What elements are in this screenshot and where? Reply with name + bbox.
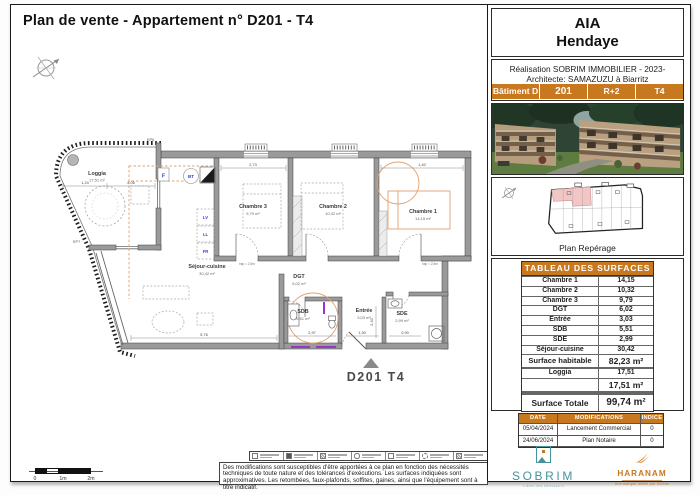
svg-text:EP7: EP7: [73, 240, 80, 244]
svg-text:1,30: 1,30: [358, 331, 365, 335]
project-city: Hendaye: [492, 33, 683, 51]
svg-text:0,90: 0,90: [401, 331, 408, 335]
lv-label: LV: [203, 215, 208, 220]
reperage-label: Plan Repérage: [492, 243, 683, 253]
unit-number: 201: [540, 84, 588, 99]
surface-row: Séjour-cuisine30,42: [522, 345, 653, 355]
room-label-dgt: DGT: [293, 274, 305, 280]
svg-text:2,73: 2,73: [249, 163, 256, 167]
sobrim-tagline: L'âme des bâtisseurs: [506, 484, 581, 488]
sobrim-house-icon: [536, 446, 551, 463]
svg-text:5,76: 5,76: [200, 333, 207, 337]
surface-row: DGT6,02: [522, 305, 653, 315]
title-block-panel: AIA Hendaye Réalisation SOBRIM IMMOBILIE…: [487, 5, 690, 481]
room-label-sejour: Séjour-cuisine: [188, 264, 225, 270]
svg-text:hsp = 2,5m: hsp = 2,5m: [239, 262, 255, 266]
reperage-compass-icon: [500, 184, 518, 202]
credit-line-2: Architecte: SAMAZUZU à Biarritz: [492, 74, 683, 84]
room-label-chambre1: Chambre 1: [409, 209, 437, 215]
room-label-sdb: SDB: [297, 309, 308, 315]
legend-cell: [352, 452, 386, 460]
legend-cell: [318, 452, 352, 460]
svg-text:14,15 m²: 14,15 m²: [415, 216, 431, 221]
shaft-symbol: [200, 167, 215, 183]
room-label-sde: SDE: [396, 311, 407, 317]
room-label-loggia: Loggia: [88, 171, 107, 177]
scale-1m: 1m: [59, 476, 66, 482]
svg-text:6,02 m²: 6,02 m²: [292, 281, 306, 286]
unit-type: T4: [636, 84, 683, 99]
disclaimer-text: Des modifications sont susceptibles d'êt…: [219, 462, 488, 485]
symbol-legend: [249, 451, 488, 461]
unit-floor: R+2: [588, 84, 636, 99]
room-label-chambre3: Chambre 3: [239, 204, 267, 210]
loggia-column: [68, 155, 79, 166]
svg-text:EP6: EP6: [147, 138, 154, 142]
compass-icon: [29, 51, 63, 85]
surfaces-table-header: TABLEAU DES SURFACES: [522, 262, 653, 276]
hsp-labels: hsp = 2,5m hsp = 2,5m: [239, 262, 438, 266]
sobrim-wordmark: SOBRIM: [506, 469, 581, 483]
scale-solid: [63, 468, 91, 474]
plan-sheet: Plan de vente - Appartement n° D201 - T4: [10, 4, 691, 482]
svg-text:hsp = 2,5m: hsp = 2,5m: [422, 262, 438, 266]
svg-text:10,32 m²: 10,32 m²: [325, 211, 341, 216]
unit-building: Bâtiment D: [492, 84, 540, 99]
surface-row: Entrée3,03: [522, 315, 653, 325]
legend-cell: [386, 452, 420, 460]
svg-text:3,03 m²: 3,03 m²: [357, 315, 371, 320]
svg-text:1,24: 1,24: [81, 181, 88, 185]
svg-text:2,06: 2,06: [127, 181, 134, 185]
doors: [236, 234, 421, 349]
fr-label: FR: [203, 249, 209, 254]
svg-text:17,51 m²: 17,51 m²: [89, 178, 105, 183]
credit-line-1: Réalisation SOBRIM IMMOBILIER - 2023-: [492, 64, 683, 74]
haranam-rule: [622, 480, 662, 481]
unit-label: D201 T4: [341, 370, 411, 384]
legend-cell: [250, 452, 284, 460]
svg-text:1,40: 1,40: [418, 163, 425, 167]
walls: [89, 143, 471, 349]
ll-label: LL: [203, 232, 209, 237]
credits-box: Réalisation SOBRIM IMMOBILIER - 2023- Ar…: [491, 59, 684, 101]
scale-bar: 0 1m 2m: [29, 463, 119, 483]
floor-plan: F BT LV LL FR 1,24 2,06 2,73 1,40 5,76 2…: [31, 116, 481, 411]
svg-text:2,97: 2,97: [308, 331, 315, 335]
revision-row: 05/04/2024 Lancement Commercial 0: [519, 423, 663, 435]
haranam-logo: HARANAM Une marque initiée par Sobrim: [606, 451, 678, 486]
haranam-tagline: Une marque initiée par Sobrim: [606, 482, 678, 486]
surfaces-box: TABLEAU DES SURFACES Chambre 114,15 Cham…: [491, 258, 684, 411]
project-header: AIA Hendaye: [491, 8, 684, 57]
bt-label: BT: [188, 174, 194, 179]
haranam-wordmark: HARANAM: [606, 469, 678, 478]
room-label-chambre2: Chambre 2: [319, 204, 347, 210]
unit-pointer-triangle: [363, 358, 379, 368]
surface-row: Chambre 114,15: [522, 276, 653, 286]
surface-row: SDE2,99: [522, 335, 653, 345]
loggia-table: [85, 186, 125, 226]
surfaces-table: TABLEAU DES SURFACES Chambre 114,15 Cham…: [521, 261, 654, 412]
building-render: [491, 103, 684, 175]
surface-row: Chambre 39,79: [522, 296, 653, 306]
scale-0: 0: [34, 476, 37, 482]
sobrim-logo: SOBRIM L'âme des bâtisseurs: [506, 446, 581, 488]
revisions-table: DATE MODIFICATIONS INDICE 05/04/2024 Lan…: [518, 413, 664, 448]
room-label-entree: Entrée: [356, 308, 373, 314]
surface-total-row: Surface Totale99,74 m²: [522, 394, 653, 411]
legend-cell: [420, 452, 454, 460]
project-name: AIA: [492, 15, 683, 33]
reperage-box: Plan Repérage: [491, 177, 684, 256]
scale-2m: 2m: [87, 476, 94, 482]
svg-text:2,99 m²: 2,99 m²: [395, 318, 409, 323]
surface-loggia-total-row: 17,51 m²: [522, 378, 653, 391]
haranam-wing-icon: [633, 451, 651, 464]
revisions-header: DATE MODIFICATIONS INDICE: [519, 414, 663, 423]
legend-cell: [454, 452, 487, 460]
surface-habitable-row: Surface habitable82,23 m²: [522, 354, 653, 367]
surface-row: Chambre 210,32: [522, 286, 653, 296]
page-title: Plan de vente - Appartement n° D201 - T4: [23, 13, 313, 29]
legend-cell: [284, 452, 318, 460]
svg-text:5,51 m²: 5,51 m²: [296, 316, 310, 321]
svg-text:30,42 m²: 30,42 m²: [199, 271, 215, 276]
reperage-plan: [540, 182, 656, 242]
ep-labels: EP6 EP7: [73, 138, 154, 244]
svg-text:9,79 m²: 9,79 m²: [246, 211, 260, 216]
surface-row: SDB5,51: [522, 325, 653, 335]
unit-info-bar: Bâtiment D 201 R+2 T4: [492, 84, 683, 99]
surface-loggia-row: Loggia17,51: [522, 368, 653, 378]
revision-row: 24/06/2024 Plan Notaire 0: [519, 435, 663, 447]
building-render-illustration: [492, 104, 683, 174]
